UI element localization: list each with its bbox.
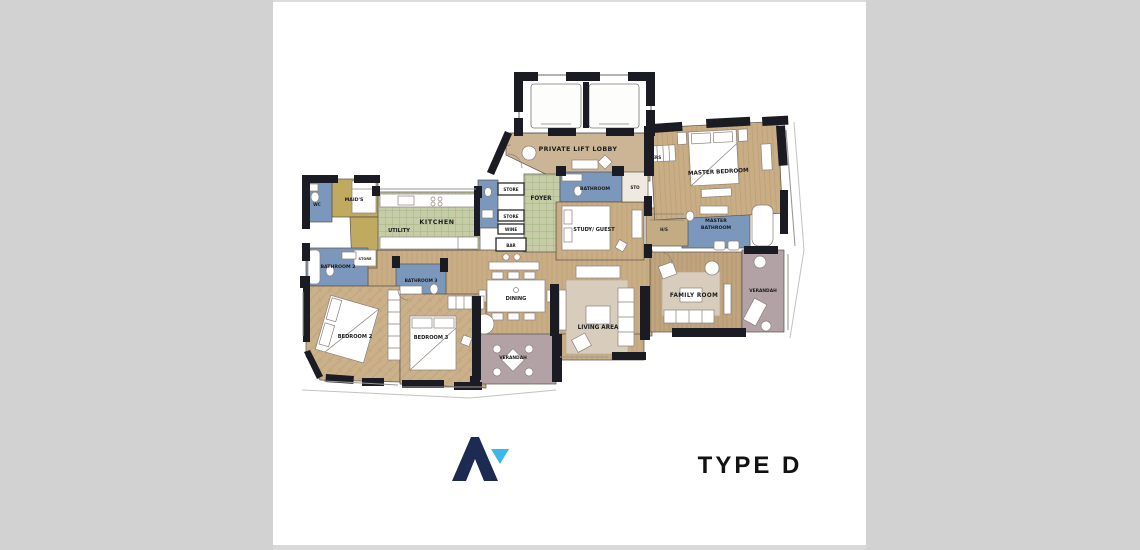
chair-icon bbox=[493, 368, 501, 376]
bathroom-1-label: BATHROOM bbox=[580, 186, 611, 192]
chair-icon bbox=[525, 345, 533, 353]
round-table-icon bbox=[522, 146, 536, 160]
lift-car-icon bbox=[589, 84, 639, 128]
lift-car-icon bbox=[531, 84, 581, 128]
stove-icon bbox=[431, 202, 435, 206]
tv-console-icon bbox=[724, 284, 731, 314]
verandah-bottom-label: VERANDAH bbox=[499, 355, 527, 361]
chandelier-icon bbox=[514, 288, 519, 293]
sto-label: STO bbox=[630, 185, 640, 190]
living-area-label: LIVING AREA bbox=[578, 325, 619, 331]
bedroom-2-label: BEDROOM 2 bbox=[338, 334, 373, 340]
bottom-hairline bbox=[273, 545, 866, 550]
verandah-right-label: VERANDAH bbox=[749, 288, 777, 294]
console-icon bbox=[572, 160, 598, 169]
fridge-icon bbox=[458, 237, 478, 249]
toilet-icon bbox=[311, 192, 319, 202]
store-left-label: STORE bbox=[359, 257, 373, 261]
stool-icon bbox=[503, 254, 509, 260]
bathroom-3-label: BATHROOM 3 bbox=[405, 278, 438, 284]
bedroom-3-label: BEDROOM 3 bbox=[414, 335, 449, 341]
chair-icon bbox=[508, 313, 519, 320]
maids-label: MAID'S bbox=[345, 197, 364, 203]
coffee-table-icon bbox=[586, 306, 610, 324]
stove-icon bbox=[438, 202, 442, 206]
basin-icon bbox=[342, 252, 356, 259]
basin-icon bbox=[700, 206, 728, 214]
basin-icon bbox=[400, 286, 422, 294]
pillow-icon bbox=[434, 318, 454, 328]
toilet-icon bbox=[430, 284, 438, 294]
plant-icon bbox=[754, 256, 766, 268]
stove-icon bbox=[438, 197, 442, 201]
type-label: TYPE D bbox=[698, 452, 803, 479]
wine-label: WINE bbox=[505, 227, 517, 232]
bar-label: BAR bbox=[506, 243, 516, 248]
wc-label: WC bbox=[313, 202, 321, 207]
armchair-icon bbox=[705, 261, 719, 275]
wardrobe-icon bbox=[388, 290, 400, 360]
sideboard-icon bbox=[489, 262, 539, 270]
stove-icon bbox=[431, 197, 435, 201]
stool-icon bbox=[514, 254, 520, 260]
store-2-label: STORE bbox=[503, 214, 518, 219]
pillow-icon bbox=[691, 133, 710, 144]
nightstand-icon bbox=[677, 132, 687, 144]
pillow-icon bbox=[564, 210, 572, 224]
chair-icon bbox=[492, 313, 503, 320]
top-hairline bbox=[273, 0, 866, 2]
hs-label: H/S bbox=[660, 227, 668, 232]
bathroom-2-label: BATHROOM 2 bbox=[320, 264, 355, 270]
shower-icon bbox=[714, 241, 725, 250]
toilet-icon bbox=[686, 211, 694, 221]
study-guest-label: STUDY/ GUEST bbox=[573, 227, 615, 233]
dresser-icon bbox=[761, 144, 772, 170]
desk-icon bbox=[632, 210, 642, 238]
chair-icon bbox=[524, 313, 535, 320]
basin-icon bbox=[482, 210, 493, 218]
pillow-icon bbox=[412, 318, 432, 328]
shower-icon bbox=[728, 241, 739, 250]
chair-icon bbox=[493, 345, 501, 353]
toilet-icon bbox=[485, 188, 492, 197]
bench-icon bbox=[701, 188, 731, 198]
family-room-label: FAMILY ROOM bbox=[670, 293, 718, 299]
private-lift-lobby-label: PRIVATE LIFT LOBBY bbox=[539, 146, 618, 153]
dining-label: DINING bbox=[506, 296, 527, 302]
tv-console-icon bbox=[559, 290, 566, 330]
master-bathroom-label-1: MASTER bbox=[705, 218, 727, 224]
counter-icon bbox=[380, 194, 478, 207]
foyer-label: FOYER bbox=[531, 196, 553, 202]
bathtub-icon bbox=[752, 205, 773, 246]
store-1-label: STORE bbox=[503, 187, 518, 192]
pillow-icon bbox=[713, 132, 732, 143]
room-foyer bbox=[524, 174, 560, 252]
sink-icon bbox=[398, 196, 414, 205]
master-bathroom-label-2: BATHROOM bbox=[701, 225, 732, 231]
console-icon bbox=[576, 266, 620, 278]
chair-icon bbox=[492, 272, 503, 279]
floor-plan-canvas: MASTER BEDROOM bbox=[0, 0, 1140, 550]
round-table-icon bbox=[761, 321, 771, 331]
utility-label: UTILITY bbox=[388, 228, 410, 234]
hers-label: HERS bbox=[649, 155, 661, 160]
floor-plan-page: MASTER BEDROOM bbox=[0, 0, 1140, 550]
chair-icon bbox=[524, 272, 535, 279]
kitchen-label: KITCHEN bbox=[419, 219, 454, 226]
pillow-icon bbox=[564, 228, 572, 242]
chair-icon bbox=[525, 368, 533, 376]
chair-icon bbox=[508, 272, 519, 279]
nightstand-icon bbox=[738, 129, 748, 141]
